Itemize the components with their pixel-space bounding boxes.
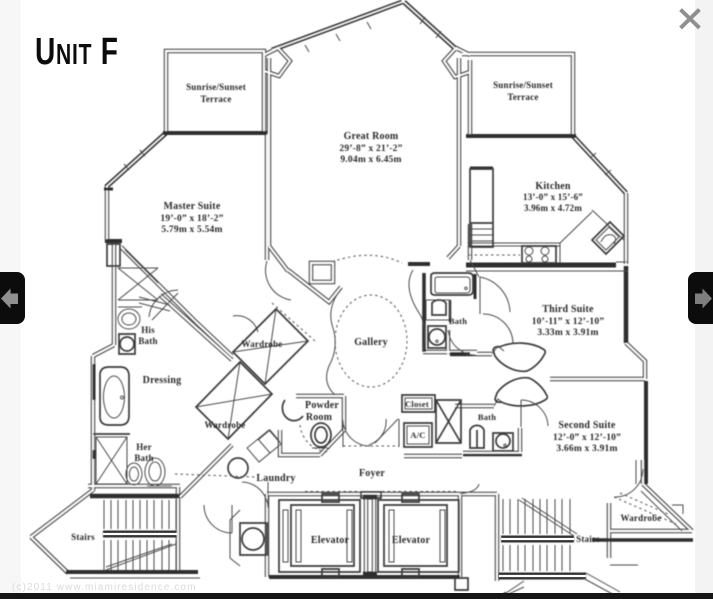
svg-text:Bath: Bath: [449, 316, 467, 326]
svg-text:Wardrobe: Wardrobe: [621, 513, 662, 523]
svg-text:Master Suite: Master Suite: [164, 201, 221, 212]
svg-text:Sunrise/Sunset: Sunrise/Sunset: [493, 80, 553, 90]
svg-text:Elevator: Elevator: [392, 535, 431, 546]
svg-text:Gallery: Gallery: [354, 337, 388, 348]
svg-text:Elevator: Elevator: [311, 535, 350, 546]
svg-text:Dressing: Dressing: [143, 375, 182, 386]
svg-text:Kitchen: Kitchen: [535, 181, 571, 192]
svg-text:Closet: Closet: [405, 399, 429, 409]
svg-text:Stairs: Stairs: [71, 532, 95, 542]
svg-text:Sunrise/Sunset: Sunrise/Sunset: [186, 82, 246, 92]
svg-text:Terrace: Terrace: [507, 92, 538, 102]
svg-text:Wardrobe: Wardrobe: [205, 420, 246, 430]
svg-text:10’-11” x 12’-10”: 10’-11” x 12’-10”: [532, 317, 605, 327]
svg-text:Room: Room: [306, 412, 333, 423]
svg-text:His: His: [141, 325, 155, 335]
svg-text:Laundry: Laundry: [256, 473, 295, 484]
svg-text:Stairs: Stairs: [576, 534, 600, 544]
svg-text:Great Room: Great Room: [344, 131, 399, 142]
svg-text:A/C: A/C: [410, 430, 425, 440]
svg-text:12’-0” x 12’-10”: 12’-0” x 12’-10”: [553, 433, 621, 443]
svg-text:Second Suite: Second Suite: [558, 420, 615, 431]
svg-text:9.04m x 6.45m: 9.04m x 6.45m: [340, 155, 401, 165]
svg-text:(c)2011 www.miamiresidence.com: (c)2011 www.miamiresidence.com: [12, 582, 197, 593]
svg-text:3.96m x 4.72m: 3.96m x 4.72m: [524, 203, 582, 213]
svg-text:3.33m x 3.91m: 3.33m x 3.91m: [537, 328, 598, 338]
svg-text:Her: Her: [136, 442, 152, 452]
svg-text:3.66m x 3.91m: 3.66m x 3.91m: [556, 444, 617, 454]
svg-text:Powder: Powder: [305, 400, 339, 411]
svg-text:13’-0” x 15’-6”: 13’-0” x 15’-6”: [523, 192, 583, 202]
svg-text:Foyer: Foyer: [359, 468, 385, 479]
svg-text:29’-8” x 21’-2”: 29’-8” x 21’-2”: [339, 144, 402, 154]
svg-text:Bath: Bath: [138, 336, 157, 346]
svg-text:Bath: Bath: [478, 412, 496, 422]
svg-text:5.79m x 5.54m: 5.79m x 5.54m: [161, 225, 222, 235]
svg-text:Bath: Bath: [134, 453, 153, 463]
svg-text:19’-0” x 18’-2”: 19’-0” x 18’-2”: [160, 214, 223, 224]
svg-text:Wardrobe: Wardrobe: [242, 339, 283, 349]
svg-text:Terrace: Terrace: [200, 94, 231, 104]
svg-text:Third Suite: Third Suite: [542, 304, 594, 315]
